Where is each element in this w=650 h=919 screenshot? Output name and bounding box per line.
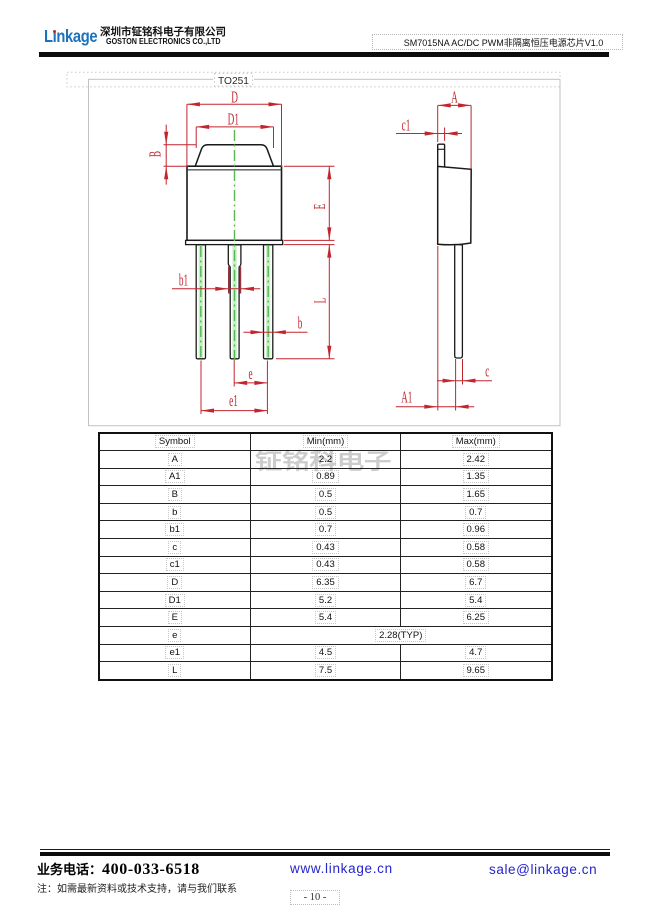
svg-text:c: c bbox=[485, 361, 489, 380]
svg-text:L: L bbox=[311, 298, 330, 304]
svg-text:D: D bbox=[231, 88, 238, 107]
svg-text:e1: e1 bbox=[229, 391, 238, 410]
svg-text:b: b bbox=[298, 314, 303, 333]
svg-text:E: E bbox=[310, 204, 329, 210]
svg-text:c1: c1 bbox=[402, 116, 411, 135]
svg-text:TO251: TO251 bbox=[218, 76, 249, 87]
svg-text:A: A bbox=[451, 88, 458, 107]
svg-text:b1: b1 bbox=[179, 271, 188, 290]
svg-text:A1: A1 bbox=[401, 388, 412, 407]
svg-text:e: e bbox=[248, 364, 252, 383]
svg-text:B: B bbox=[146, 151, 165, 157]
svg-text:D1: D1 bbox=[228, 110, 239, 129]
